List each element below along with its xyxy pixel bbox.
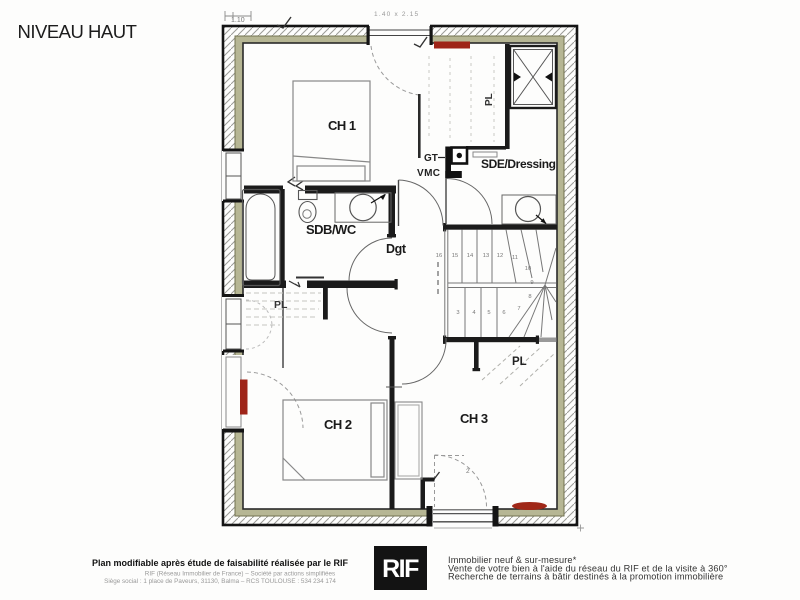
svg-text:5: 5 [487, 310, 490, 316]
svg-text:1.10: 1.10 [231, 17, 245, 24]
svg-text:2: 2 [466, 468, 470, 475]
svg-text:SDE/Dressing: SDE/Dressing [481, 157, 556, 171]
svg-text:1.40 x 2.15: 1.40 x 2.15 [374, 11, 419, 18]
svg-text:16: 16 [436, 253, 442, 259]
svg-text:PL: PL [274, 299, 288, 311]
svg-text:Dgt: Dgt [386, 242, 407, 256]
svg-text:PL: PL [512, 356, 527, 368]
svg-text:8: 8 [528, 294, 531, 300]
svg-text:10: 10 [525, 266, 531, 272]
svg-text:VMC: VMC [417, 168, 440, 179]
svg-text:GT: GT [424, 153, 438, 164]
svg-text:15: 15 [452, 253, 458, 259]
svg-text:14: 14 [467, 253, 474, 259]
svg-text:CH 3: CH 3 [460, 411, 488, 426]
svg-text:RIF (Réseau Immobilier de Fran: RIF (Réseau Immobilier de France) – Soci… [145, 571, 335, 578]
svg-text:6: 6 [502, 310, 505, 316]
svg-text:9: 9 [530, 280, 533, 286]
svg-text:13: 13 [483, 253, 489, 259]
svg-text:PL: PL [484, 93, 495, 106]
svg-text:Siège social : 1 place de Pave: Siège social : 1 place de Paveurs, 31130… [104, 578, 336, 585]
svg-text:NIVEAU HAUT: NIVEAU HAUT [18, 21, 137, 42]
svg-text:CH 2: CH 2 [324, 417, 352, 432]
svg-text:3: 3 [456, 310, 459, 316]
svg-text:CH 1: CH 1 [328, 118, 356, 133]
svg-text:12: 12 [497, 253, 503, 259]
svg-text:7: 7 [517, 306, 520, 312]
svg-text:RIF: RIF [382, 555, 419, 583]
svg-text:SDB/WC: SDB/WC [306, 222, 357, 237]
svg-text:Recherche de terrains à bâtir: Recherche de terrains à bâtir destinés à… [448, 572, 723, 582]
svg-text:Plan modifiable après étude de: Plan modifiable après étude de faisabili… [92, 558, 349, 568]
svg-text:11: 11 [512, 255, 518, 261]
